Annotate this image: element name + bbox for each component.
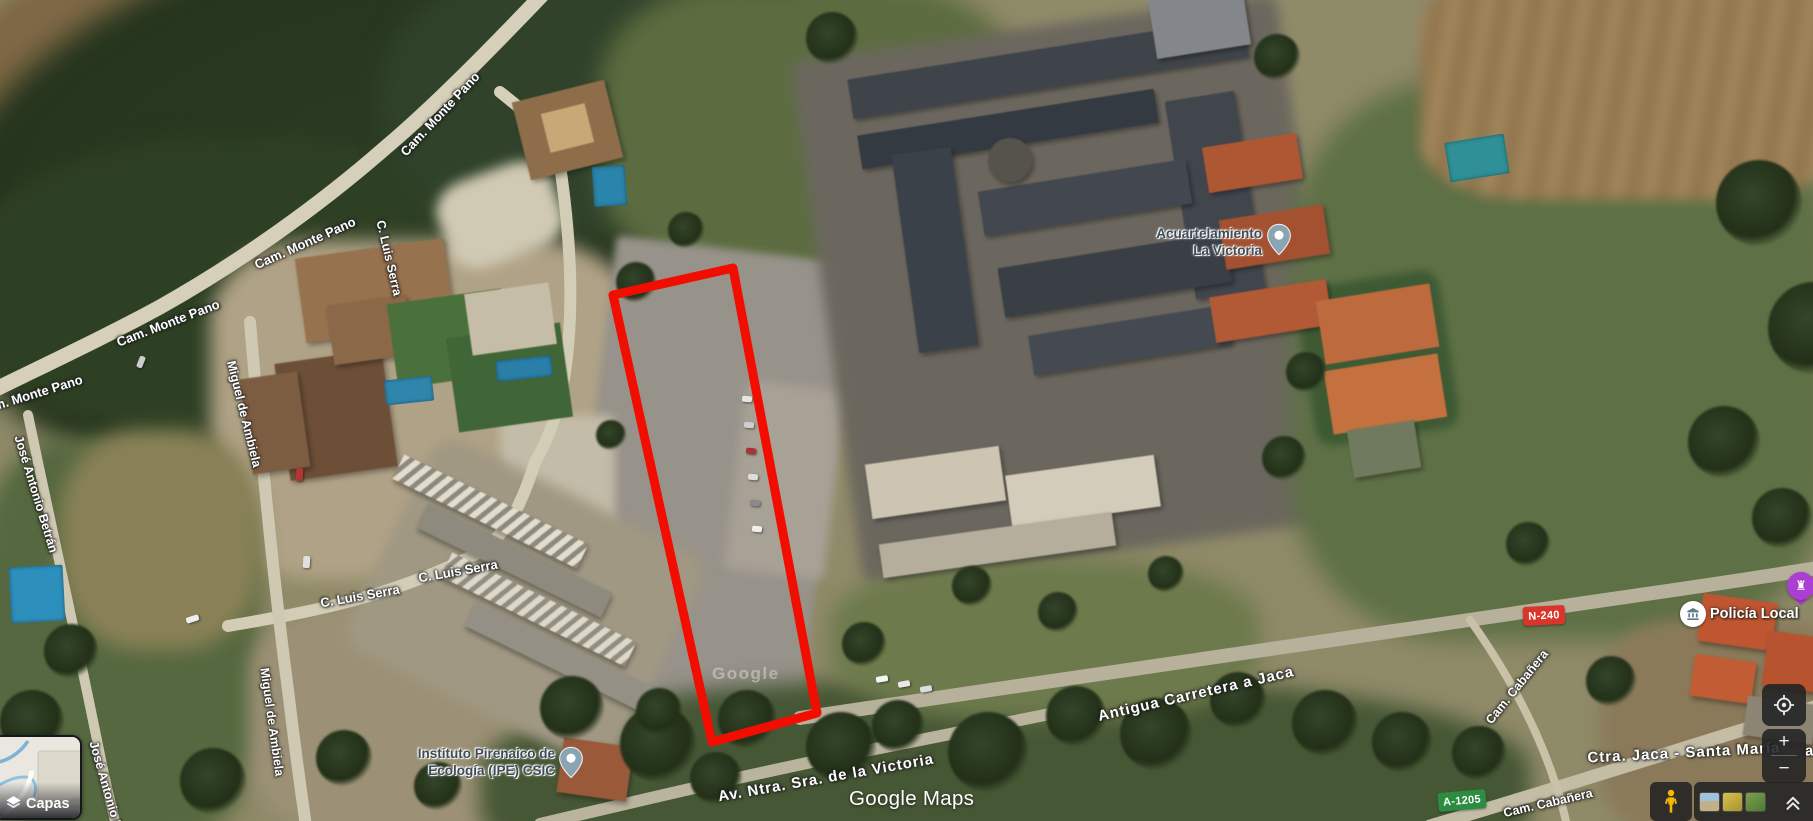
terrain-feature <box>384 376 434 406</box>
terrain-feature <box>872 700 924 752</box>
terrain-feature <box>1716 160 1802 246</box>
terrain-feature <box>750 500 760 507</box>
terrain-feature <box>842 622 886 666</box>
terrain-feature <box>724 380 846 581</box>
imagery-thumbnail-3[interactable] <box>1746 793 1765 811</box>
street-label: Cam. Cabañera <box>1483 647 1551 727</box>
castle-icon: ♜ <box>1795 578 1807 594</box>
terrain-feature <box>1292 690 1358 756</box>
satellite-map[interactable]: Google Google Maps Cam. Monte PanoCam. M… <box>0 0 1813 821</box>
pegman-button[interactable] <box>1650 782 1692 821</box>
terrain-feature <box>303 556 311 568</box>
place-pin-icon[interactable] <box>1266 223 1292 256</box>
terrain-feature <box>616 262 656 302</box>
terrain-feature <box>1046 686 1106 746</box>
terrain-feature <box>690 752 742 804</box>
my-location-button[interactable] <box>1762 684 1806 726</box>
layers-icon <box>5 794 22 811</box>
poi-line: Acuartelamiento <box>1050 226 1262 243</box>
terrain-feature <box>1286 352 1326 392</box>
terrain-feature <box>1148 556 1184 592</box>
terrain-feature <box>180 748 246 814</box>
terrain-feature <box>744 422 754 429</box>
terrain-feature <box>592 165 628 207</box>
terrain-feature <box>1752 488 1812 548</box>
terrain-feature <box>1254 34 1300 80</box>
terrain-feature <box>742 396 752 403</box>
castle-poi-marker[interactable]: ♜ <box>1787 572 1813 600</box>
terrain-feature <box>952 566 992 606</box>
zoom-control: + − <box>1762 729 1806 783</box>
terrain-feature <box>9 565 66 624</box>
poi-policia-local[interactable]: Policía Local <box>1710 606 1799 622</box>
terrain-feature <box>1506 522 1550 566</box>
poi-line: Instituto Pirenaico de <box>345 746 555 763</box>
terrain-feature <box>1372 712 1432 772</box>
terrain-feature <box>540 676 604 740</box>
layers-button-label: Capas <box>26 796 70 812</box>
place-pin-icon[interactable] <box>558 746 584 779</box>
terrain-feature <box>806 712 876 782</box>
pegman-icon <box>1662 789 1680 815</box>
terrain-feature <box>748 474 758 481</box>
road-shield-n240: N-240 <box>1523 605 1566 626</box>
imagery-bar <box>1694 782 1813 821</box>
imagery-thumbnail-2[interactable] <box>1723 793 1742 811</box>
terrain-feature <box>596 420 626 450</box>
terrain-feature <box>830 560 1260 720</box>
terrain-feature <box>1688 406 1760 478</box>
poi-line: Ecología (IPE) CSIC <box>345 763 555 780</box>
terrain-feature <box>1689 654 1756 704</box>
terrain-feature <box>1038 592 1078 632</box>
terrain-feature <box>1452 726 1506 780</box>
terrain-feature <box>1586 656 1636 706</box>
poi-instituto-pirenaico[interactable]: Instituto Pirenaico de Ecología (IPE) CS… <box>345 746 555 779</box>
terrain-feature <box>1210 672 1266 728</box>
poi-acuartelamiento-la-victoria[interactable]: Acuartelamiento La Victoria <box>1050 226 1262 259</box>
terrain-feature <box>1697 593 1778 651</box>
terrain-feature <box>806 12 858 64</box>
zoom-in-button[interactable]: + <box>1762 729 1806 755</box>
terrain-feature <box>60 430 260 650</box>
terrain-feature <box>464 282 557 355</box>
collapse-chevron-button[interactable] <box>1782 790 1804 812</box>
poi-line: La Victoria <box>1050 243 1262 260</box>
terrain-feature <box>752 526 762 533</box>
terrain-feature <box>988 138 1032 182</box>
civic-building-icon[interactable] <box>1680 601 1706 627</box>
terrain-feature <box>636 688 682 734</box>
layers-button[interactable]: Capas <box>0 735 82 820</box>
terrain-feature <box>44 624 98 678</box>
terrain-feature <box>296 468 304 481</box>
terrain-feature <box>948 712 1028 792</box>
terrain-feature <box>718 690 776 748</box>
terrain-feature <box>1262 436 1306 480</box>
my-location-icon <box>1773 694 1795 716</box>
terrain-feature <box>746 448 756 455</box>
terrain-feature <box>668 212 704 248</box>
imagery-thumbnail-1[interactable] <box>1700 793 1719 811</box>
terrain-feature <box>1120 698 1192 770</box>
zoom-out-button[interactable]: − <box>1762 756 1806 782</box>
